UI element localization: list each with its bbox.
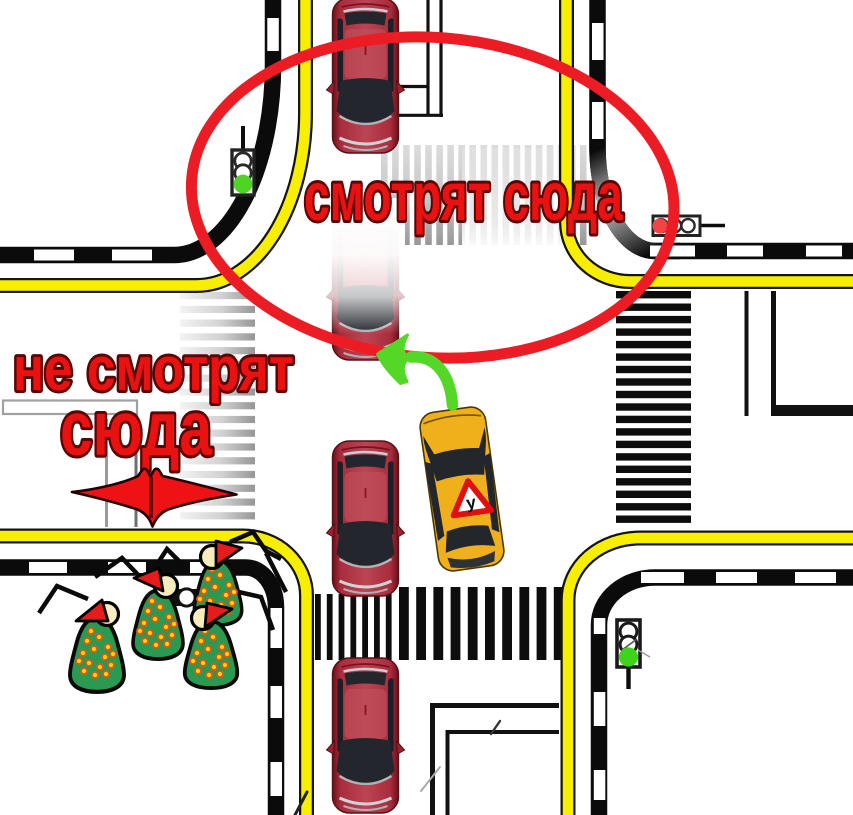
svg-text:сюда: сюда <box>60 386 213 472</box>
svg-text:смотрят сюда: смотрят сюда <box>304 158 623 235</box>
